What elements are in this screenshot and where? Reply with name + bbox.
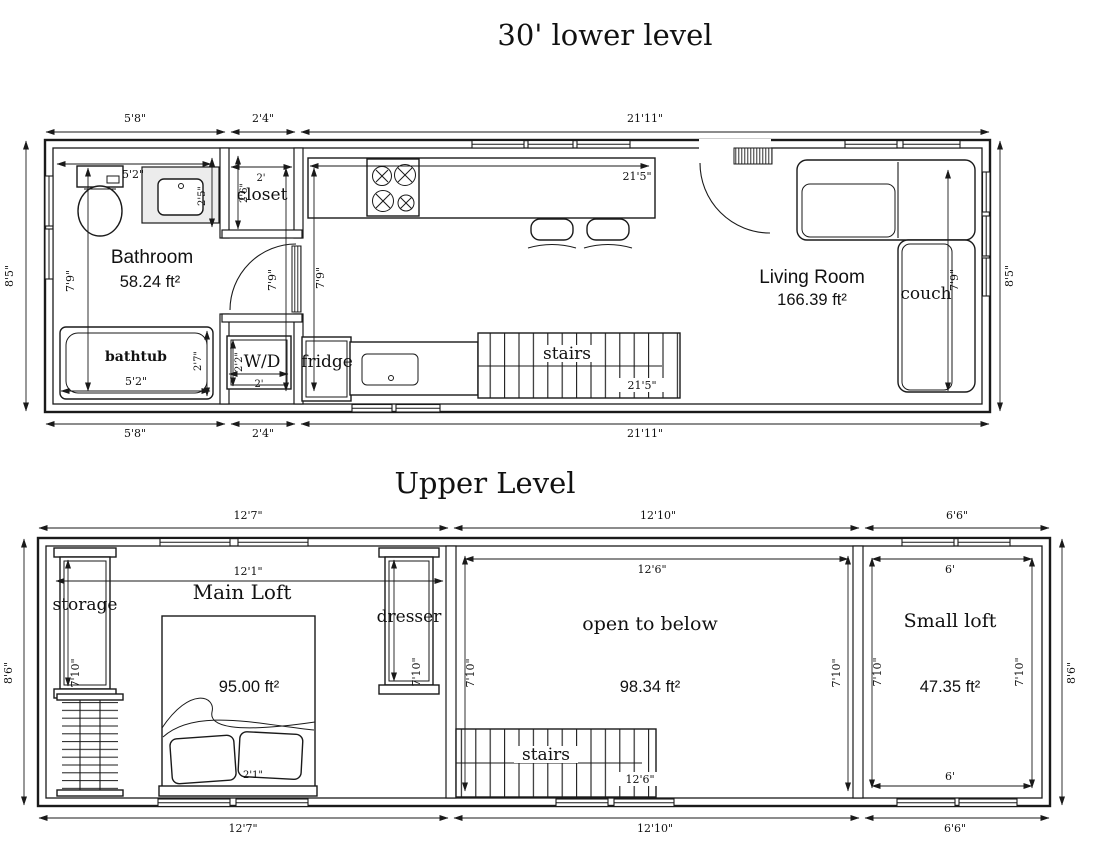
ladder	[57, 694, 123, 796]
window	[160, 539, 230, 547]
dim-top-closet: 2'4"	[252, 112, 274, 125]
dresser-label: dresser	[377, 607, 443, 627]
closet-width-dim: 2'	[256, 173, 265, 184]
dim-top-main: 21'11"	[627, 112, 663, 125]
dim-upper-right-height: 8'6"	[1065, 662, 1078, 684]
window	[577, 141, 630, 149]
dim-bottom-open: 12'10"	[637, 822, 673, 835]
stairs-lower-label: stairs	[543, 344, 591, 364]
stairs-length-dim: 21'5"	[627, 379, 656, 392]
closet-depth-dim: 2'6"	[239, 183, 250, 203]
window	[45, 229, 53, 279]
dim-top-smallloft: 6'6"	[946, 509, 968, 522]
lower-level-title: 30' lower level	[497, 18, 712, 52]
bathroom-area: 58.24 ft²	[120, 273, 181, 291]
hall-left-dim: 7'9"	[266, 269, 279, 291]
dim-bottom-closet: 2'4"	[252, 427, 274, 440]
wd-depth-dim: 2'2"	[234, 352, 245, 372]
living-room-label: Living Room	[759, 267, 865, 288]
bathroom-closet-wall-top	[220, 148, 229, 238]
toilet	[77, 166, 123, 236]
dim-upper-left-height: 8'6"	[2, 662, 15, 684]
tub-width-dim: 5'2"	[125, 375, 147, 388]
tub-depth-dim: 2'7"	[193, 351, 204, 371]
storage-cabinet	[54, 548, 116, 698]
hall-right-dim: 7'9"	[314, 267, 327, 289]
vanity-depth-dim: 2'5"	[197, 186, 208, 206]
dresser-height-dim: 7'10"	[410, 657, 423, 686]
bathroom-label: Bathroom	[111, 247, 193, 268]
dim-bottom-bathroom: 5'8"	[124, 427, 146, 440]
open-to-below-area: 98.34 ft²	[620, 678, 681, 696]
dim-top-open: 12'10"	[640, 509, 676, 522]
window	[45, 176, 53, 226]
small-top-dim: 6'	[945, 563, 955, 576]
window	[902, 539, 954, 547]
dim-bottom-mainloft: 12'7"	[228, 822, 257, 835]
window	[528, 141, 573, 149]
couch-label: couch	[900, 284, 951, 304]
small-right-dim: 7'10"	[1013, 657, 1026, 686]
window	[236, 799, 308, 807]
small-loft-area: 47.35 ft²	[920, 678, 981, 696]
stove	[367, 159, 419, 216]
bathtub-label: bathtub	[105, 349, 167, 365]
dim-right-height: 8'5"	[1003, 265, 1016, 287]
floorplan-page: 30' lower level Upper Level	[0, 0, 1093, 865]
window	[352, 405, 392, 413]
bath-height-dim: 7'9"	[64, 270, 77, 292]
lower-level-plan: 5'8" 2'4" 21'11" 5'8" 2'4" 21'11" 8'5" 8…	[3, 112, 1016, 440]
stairs-upper-label: stairs	[522, 745, 570, 765]
open-right-dim: 7'10"	[830, 658, 843, 687]
kitchen-counter	[308, 158, 655, 218]
dim-bottom-main: 21'11"	[627, 427, 663, 440]
entry-door	[699, 139, 772, 233]
closet-kitchen-wall-top	[294, 148, 303, 238]
window	[959, 799, 1017, 807]
vanity-width-dim: 5'2"	[122, 168, 144, 181]
small-loft-label: Small loft	[904, 610, 997, 632]
window	[472, 141, 524, 149]
window	[158, 799, 230, 807]
wd-top-wall	[222, 314, 302, 322]
dim-top-bathroom: 5'8"	[124, 112, 146, 125]
window	[983, 216, 991, 256]
open-to-below-label: open to below	[582, 613, 718, 635]
bed-width-dim: 2'1"	[243, 770, 263, 781]
open-left-dim: 7'10"	[464, 658, 477, 687]
bed	[159, 616, 317, 796]
upper-level-plan: 12'7" 12'10" 6'6" 12'7" 12'10" 6'6" 8'6"…	[2, 509, 1078, 835]
window	[845, 141, 897, 149]
kitchen-sink-counter	[350, 342, 478, 395]
window	[903, 141, 960, 149]
storage-height-dim: 7'10"	[69, 658, 82, 687]
small-bottom-dim: 6'	[945, 770, 955, 783]
window	[983, 172, 991, 212]
wd-label: W/D	[244, 352, 281, 372]
loft-open-divider-wall	[446, 546, 456, 798]
living-room-area: 166.39 ft²	[777, 291, 847, 309]
window	[238, 539, 308, 547]
closet-bottom-wall	[222, 230, 302, 238]
living-height-dim: 7'9"	[948, 269, 961, 291]
window	[897, 799, 955, 807]
window	[614, 799, 674, 807]
open-smallloft-divider-wall	[853, 546, 863, 798]
fridge-label: fridge	[301, 352, 353, 372]
dim-top-mainloft: 12'7"	[233, 509, 262, 522]
bar-stools	[528, 219, 632, 248]
window	[396, 405, 440, 413]
main-loft-area: 95.00 ft²	[219, 678, 280, 696]
window	[958, 539, 1010, 547]
wd-width-dim: 2'	[254, 379, 263, 390]
window	[983, 258, 991, 296]
window	[556, 799, 608, 807]
open-bottom-dim: 12'6"	[625, 773, 654, 786]
open-top-dim: 12'6"	[637, 563, 666, 576]
dim-left-height: 8'5"	[3, 265, 16, 287]
floorplan-drawing: 30' lower level Upper Level	[0, 0, 1093, 865]
dim-bottom-smallloft: 6'6"	[944, 822, 966, 835]
mainloft-width-dim: 12'1"	[233, 565, 262, 578]
counter-length-dim: 21'5"	[622, 170, 651, 183]
small-left-dim: 7'10"	[871, 657, 884, 686]
upper-level-title: Upper Level	[394, 466, 575, 500]
storage-label: storage	[53, 595, 118, 615]
main-loft-label: Main Loft	[193, 580, 292, 604]
